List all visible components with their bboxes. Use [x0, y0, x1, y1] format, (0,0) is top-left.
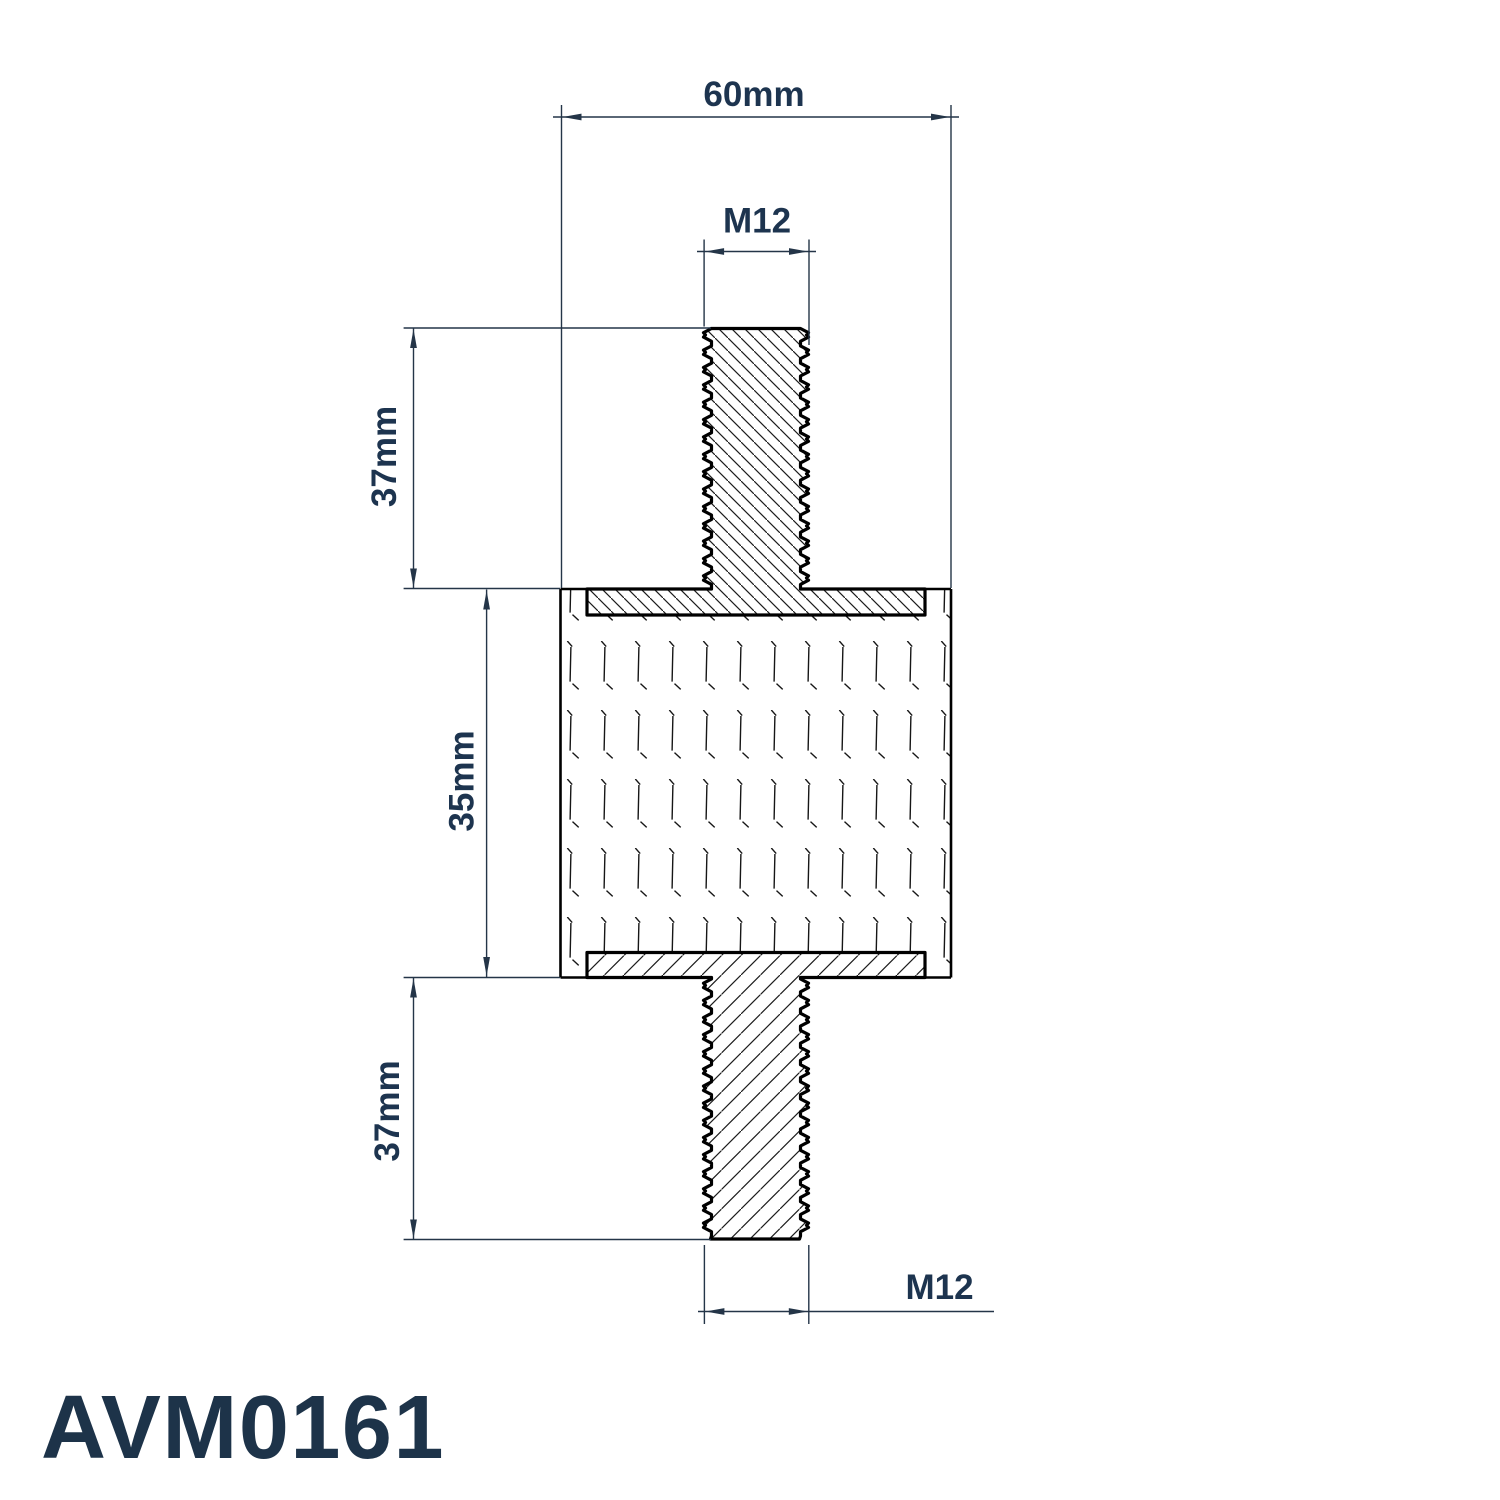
svg-text:37mm: 37mm — [368, 1060, 407, 1161]
svg-text:35mm: 35mm — [443, 730, 482, 831]
svg-text:M12: M12 — [905, 1268, 973, 1307]
svg-text:37mm: 37mm — [365, 406, 404, 507]
svg-text:60mm: 60mm — [703, 75, 804, 114]
svg-text:M12: M12 — [723, 202, 791, 241]
svg-text:AVM0161: AVM0161 — [41, 1378, 445, 1478]
